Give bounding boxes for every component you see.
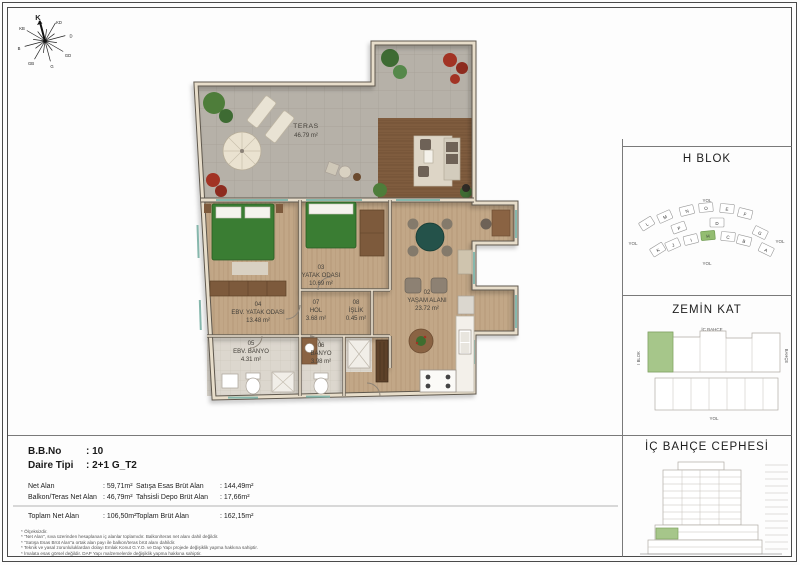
road-bottom: YOL: [702, 261, 712, 266]
toplam-net-value: : 106,50m²: [103, 513, 136, 520]
room-07-name: HOL: [310, 308, 323, 314]
floor-key-right-label: BAHÇE: [784, 349, 789, 364]
terrace-table: [339, 166, 351, 178]
panel-title-elevation: İÇ BAHÇE CEPHESİ: [622, 441, 792, 453]
room-06-name: BANYO: [310, 351, 331, 357]
room-04-name: EBV. YATAK ODASI: [231, 310, 285, 316]
floor-key-bottom-label: YOL: [709, 416, 719, 421]
daire-tipi-value: : 2+1 G_T2: [86, 460, 137, 471]
daire-tipi-row: Daire Tipi: 2+1 G_T2: [28, 460, 137, 471]
compass-label-se: GD: [65, 53, 71, 58]
room-03-num: 03: [318, 265, 325, 271]
room-07-area: 3.68 m²: [306, 316, 326, 322]
floor-plan: TERAS 46.79 m² 02 YAŞAM ALANI 23.72 m² 0…: [196, 43, 516, 398]
panel-title-floor: ZEMİN KAT: [622, 304, 792, 316]
room-05-name: EBV. BANYO: [233, 349, 269, 355]
compass-label-s: G: [50, 64, 53, 69]
totals-row: Toplam Net Alan: 106,50m²Toplam Brüt Ala…: [28, 513, 253, 520]
toplam-brut-value: : 162,15m²: [220, 513, 253, 520]
panel-block-map: YOL YOL YOL YOL L M N O E F G K J I H C …: [628, 198, 785, 266]
room-08-num: 08: [353, 300, 360, 306]
rug: [232, 262, 268, 275]
block-e: E: [725, 207, 728, 212]
footnote-5: * İmalata esas görsel değildir. DAP Yapı…: [21, 551, 258, 556]
room-04-num: 04: [255, 302, 262, 308]
footnotes: * Ölçeksizdir. * "Net Alan", sıva üzerin…: [21, 529, 258, 556]
room-04-area: 13.48 m²: [246, 318, 270, 324]
area-row-1: Net Alan: 59,71m²Satışa Esas Brüt Alan: …: [28, 483, 253, 490]
area-row-2: Balkon/Teras Net Alan: 46,79m²Tahsisli D…: [28, 494, 250, 501]
compass-label-n: K: [35, 13, 41, 22]
road-right: YOL: [775, 239, 785, 244]
highlighted-elevation-unit: [656, 528, 678, 539]
toplam-brut-label: Toplam Brüt Alan: [136, 513, 220, 520]
depo-label: Tahsisli Depo Brüt Alan: [136, 494, 220, 501]
single-bed: [306, 202, 356, 248]
floor-key-left-label: I BLOK: [636, 351, 641, 365]
compass-label-w: B: [18, 46, 21, 51]
sideboard: [458, 250, 472, 274]
room-03-name: YATAK ODASI: [302, 273, 341, 279]
terrace-area: 46.79 m²: [294, 133, 318, 139]
panel-floor-key: İÇ BAHÇE YOL I BLOK BAHÇE: [636, 326, 789, 421]
depo-value: : 17,66m²: [220, 494, 250, 501]
room-02-num: 02: [424, 290, 431, 296]
utility-closet: [348, 340, 370, 368]
room-03-area: 10.69 m²: [309, 281, 333, 287]
room-05-area: 4.31 m²: [241, 357, 261, 363]
terrace-label: TERAS: [293, 123, 319, 130]
net-alan-label: Net Alan: [28, 483, 103, 490]
balkon-value: : 46,79m²: [103, 494, 136, 501]
panel-title-block: H BLOK: [622, 153, 792, 165]
bb-no-row: B.B.No: 10: [28, 446, 103, 457]
compass-label-ne: KD: [56, 20, 62, 25]
block-h-highlighted: H: [706, 234, 710, 239]
room-07-num: 07: [313, 300, 320, 306]
net-alan-value: : 59,71m²: [103, 483, 136, 490]
bb-no-value: : 10: [86, 446, 103, 457]
satis-brut-label: Satışa Esas Brüt Alan: [136, 483, 220, 490]
entry-door-panel: [376, 340, 388, 382]
parasol-icon: [223, 132, 261, 170]
room-06-area: 3.98 m²: [311, 359, 331, 365]
satis-brut-value: : 144,49m²: [220, 483, 253, 490]
road-top: YOL: [702, 198, 712, 203]
room-05-num: 05: [248, 341, 255, 347]
footnote-4: * Teknik ve yasal zorunluluklardan dolay…: [21, 545, 258, 550]
compass-rose: K KD D GD G GB B KB: [18, 13, 73, 69]
room-08-area: 0.45 m²: [346, 316, 366, 322]
road-left: YOL: [628, 241, 638, 246]
stove-icon: [420, 370, 456, 392]
highlighted-unit: [648, 332, 673, 372]
room-06-num: 06: [318, 343, 325, 349]
room-02-area: 23.72 m²: [415, 306, 439, 312]
room-02-name: YAŞAM ALANI: [407, 298, 447, 304]
compass-label-sw: GB: [28, 61, 34, 66]
compass-label-e: D: [69, 34, 72, 39]
toplam-net-label: Toplam Net Alan: [28, 513, 103, 520]
daire-tipi-label: Daire Tipi: [28, 460, 86, 471]
floor-plan-sheet: K KD D GD G GB B KB: [0, 0, 800, 565]
terrace-pot: [353, 173, 361, 181]
site-blocks: L M N O E F G K J I H C B A P D: [638, 202, 774, 257]
coffee-table: [409, 329, 433, 353]
compass-label-nw: KB: [19, 26, 25, 31]
room-08-name: İŞLİK: [349, 307, 364, 314]
level-marks: [765, 465, 788, 549]
sheet-graphics: K KD D GD G GB B KB: [0, 0, 800, 565]
balkon-label: Balkon/Teras Net Alan: [28, 494, 103, 501]
double-bed: [204, 204, 283, 260]
bb-no-label: B.B.No: [28, 446, 86, 457]
panel-elevation: [640, 462, 788, 554]
